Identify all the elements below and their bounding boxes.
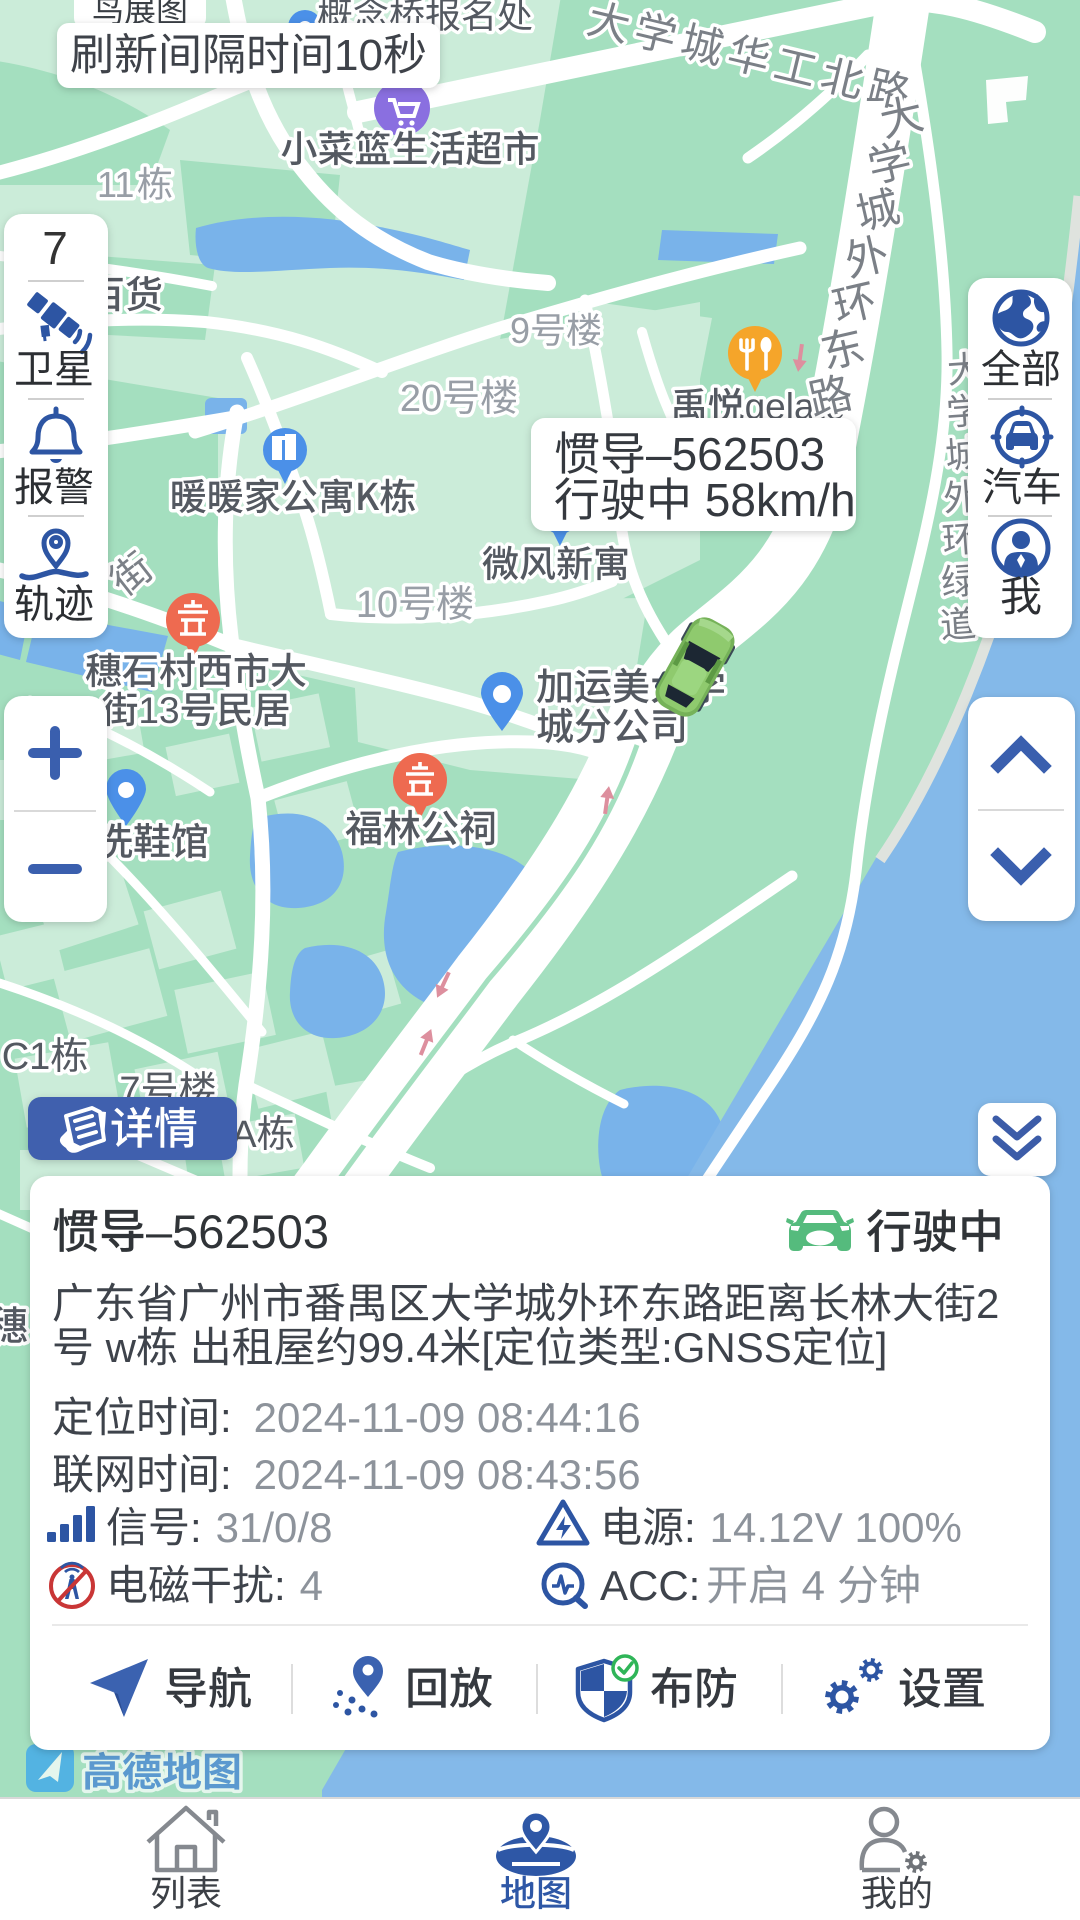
svg-text:14.12V 100%: 14.12V 100%: [698, 1504, 962, 1551]
svg-text:–562503: –562503: [646, 428, 825, 480]
svg-text:2024-11-09 08:43:56: 2024-11-09 08:43:56: [242, 1451, 641, 1498]
svg-text:10: 10: [356, 584, 398, 626]
svg-text::: :: [220, 1394, 232, 1441]
svg-text:–562503: –562503: [146, 1205, 329, 1258]
svg-text:11: 11: [97, 164, 134, 205]
svg-text::: :: [684, 1504, 696, 1551]
svg-text:20: 20: [400, 378, 442, 420]
svg-text:w: w: [94, 1324, 137, 1371]
svg-text::: :: [274, 1562, 286, 1609]
svg-text:2: 2: [976, 1280, 999, 1327]
svg-text:58km/h: 58km/h: [692, 474, 856, 526]
svg-text:4: 4: [288, 1562, 323, 1609]
svg-text:]: ]: [876, 1324, 888, 1371]
svg-text:10: 10: [334, 31, 383, 80]
svg-text:99.4: 99.4: [358, 1324, 440, 1371]
svg-text::GNSS: :GNSS: [661, 1324, 792, 1371]
svg-text:31/0/8: 31/0/8: [204, 1504, 332, 1551]
svg-text::: :: [220, 1451, 232, 1498]
svg-text:C1: C1: [2, 1036, 51, 1078]
svg-text:[: [: [481, 1324, 493, 1371]
svg-text:13: 13: [138, 690, 179, 731]
svg-text:ACC:: ACC:: [600, 1562, 700, 1609]
svg-text:7: 7: [42, 222, 68, 274]
svg-text:2024-11-09 08:44:16: 2024-11-09 08:44:16: [242, 1394, 641, 1441]
svg-text::: :: [190, 1504, 202, 1551]
svg-text:4: 4: [790, 1562, 825, 1609]
svg-text:9: 9: [510, 310, 530, 351]
